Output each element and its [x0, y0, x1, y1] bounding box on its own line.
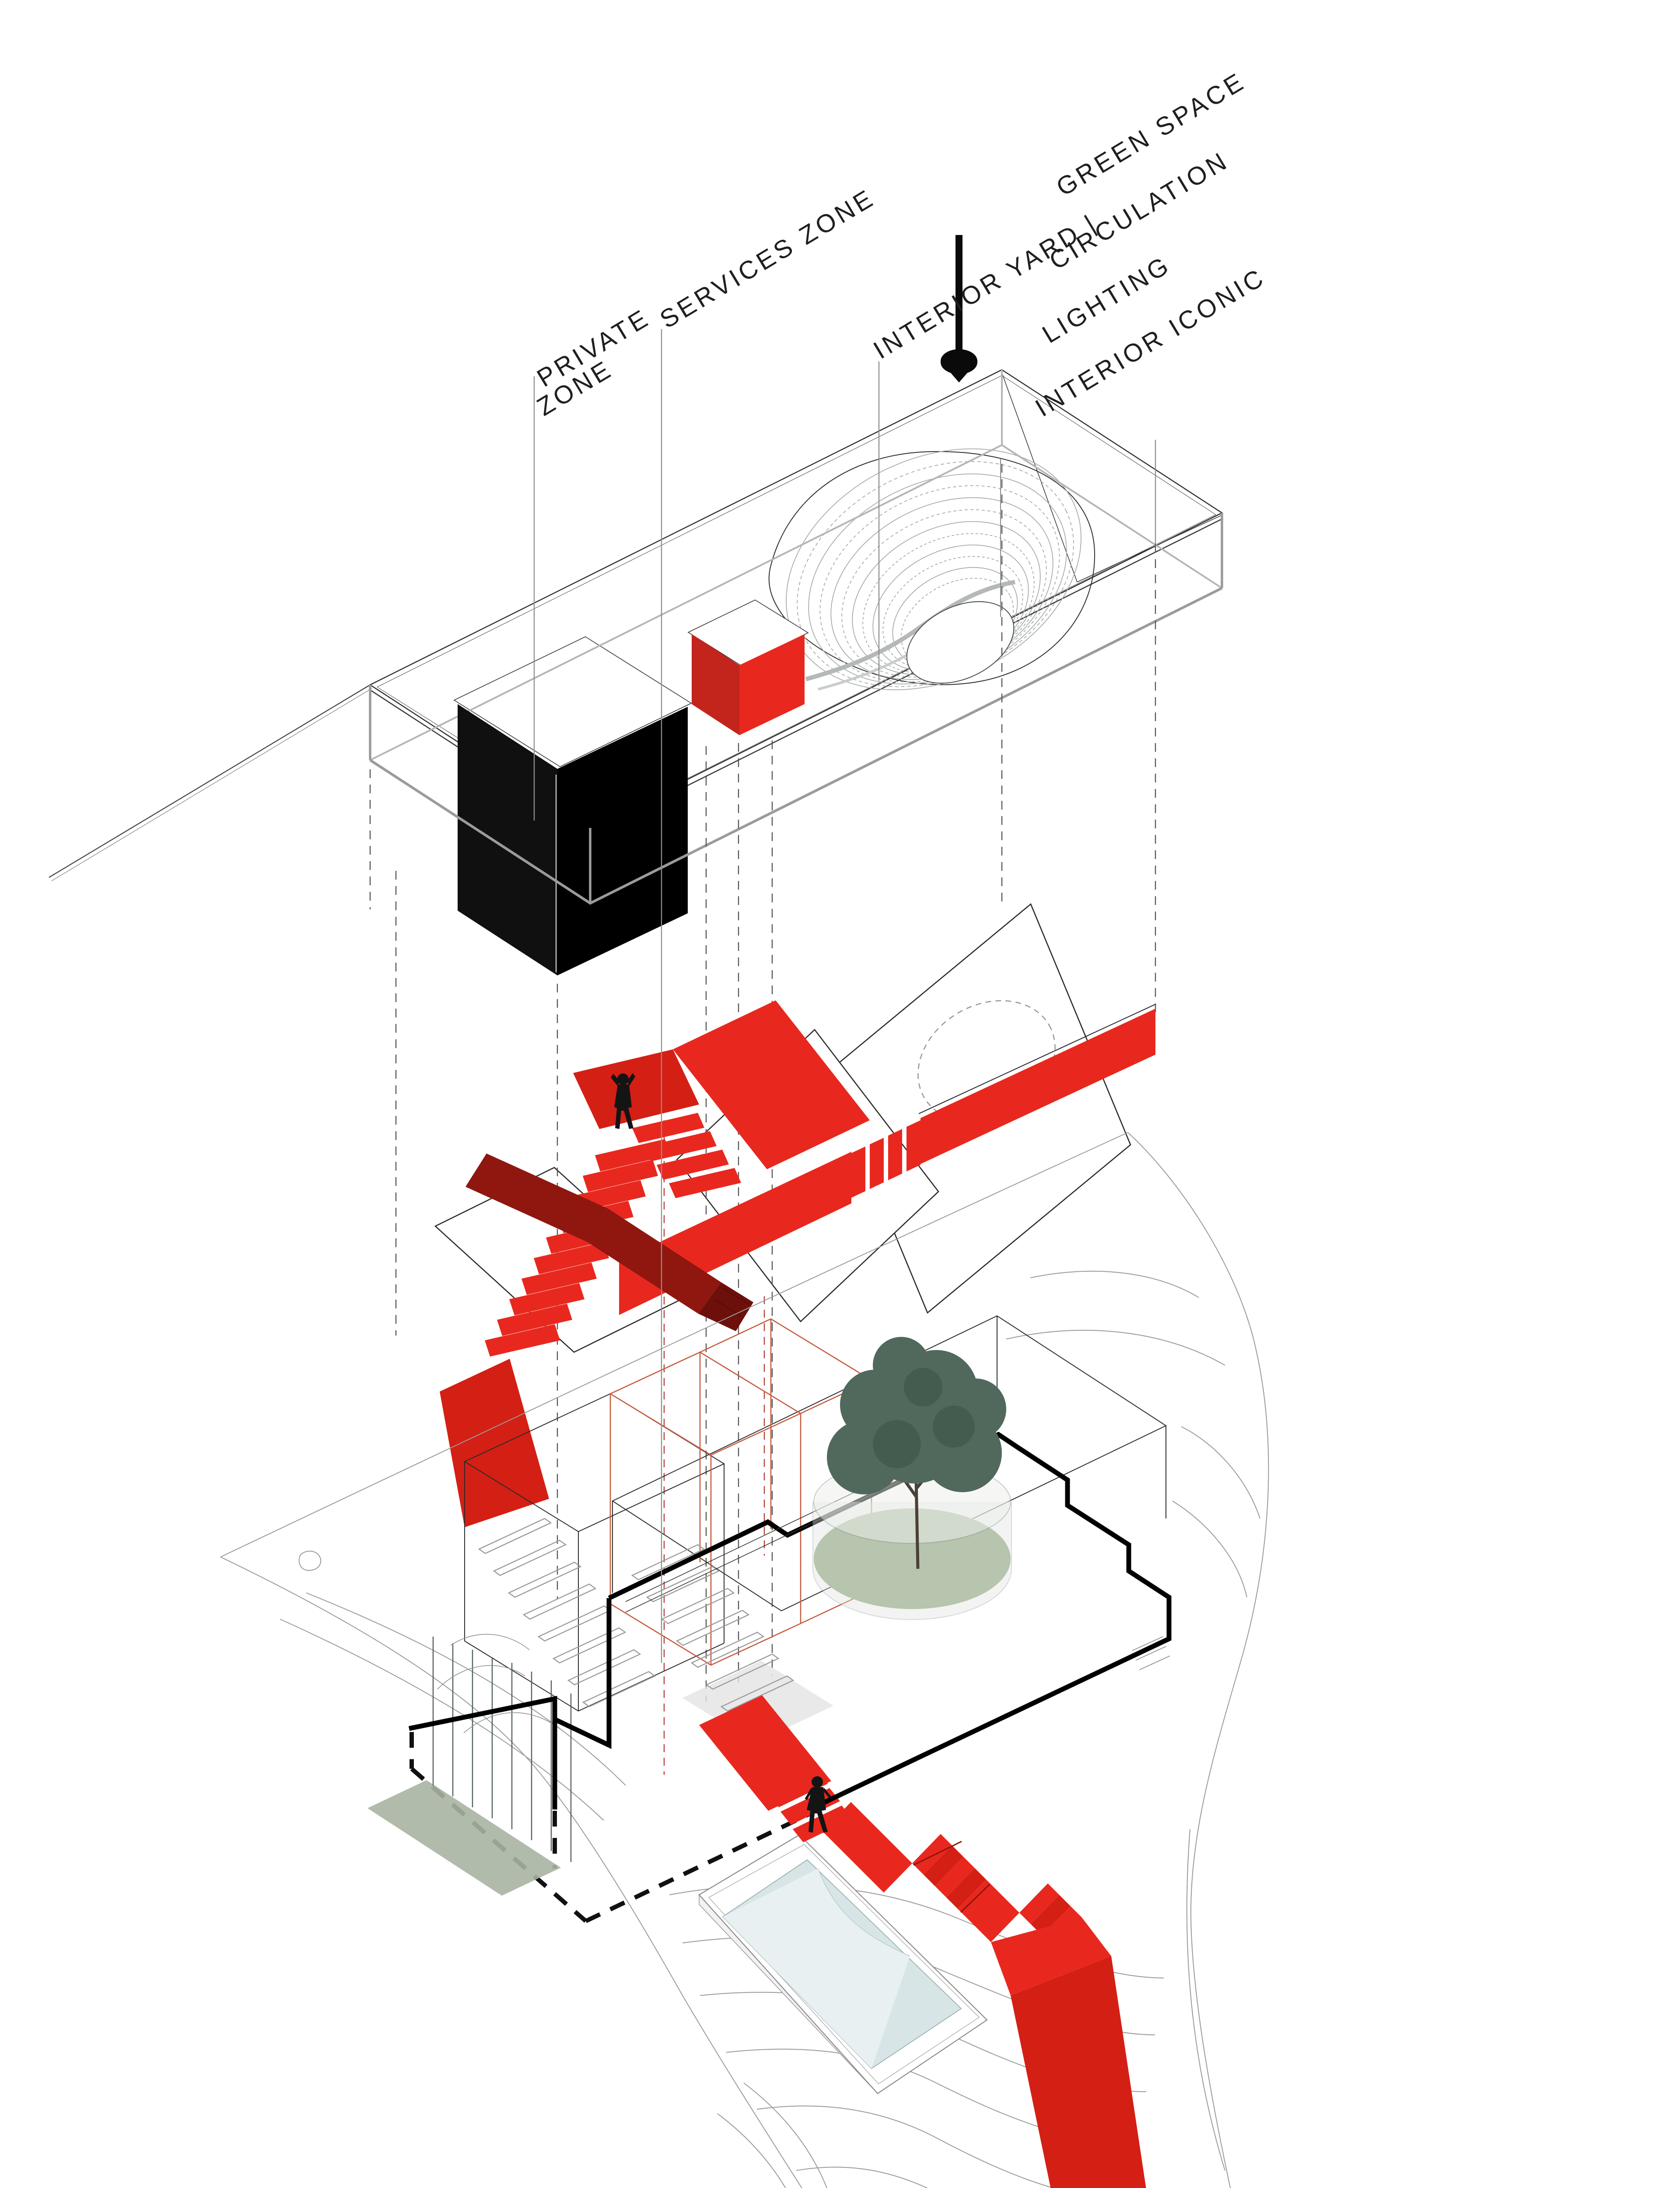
- contour-line: [1172, 1501, 1247, 1597]
- stair-tread: [870, 1138, 884, 1189]
- contour-line: [1030, 1271, 1199, 1297]
- ground-stair-run-left: [479, 1518, 655, 1707]
- stair-tread: [906, 1120, 920, 1171]
- red-path-lower-band: [1011, 1956, 1164, 2188]
- pond-blob: [299, 1551, 321, 1571]
- contour-line: [1187, 1829, 1225, 2170]
- contour-line: [744, 2083, 831, 2188]
- tree-foliage: [827, 1337, 1006, 1494]
- red-band-lower: [440, 1359, 549, 1527]
- contour-line: [306, 1593, 626, 1785]
- label-services-zone: SERVICES ZONE: [655, 183, 880, 334]
- stair-tread: [851, 1147, 865, 1198]
- tree: [813, 1337, 1011, 1620]
- label-green-space: GREEN SPACE: [1051, 67, 1250, 202]
- diagram-drawing: PRIVATE ZONE SERVICES ZONE INTERIOR YARD…: [0, 0, 1680, 2188]
- arrow-tip: [941, 362, 976, 382]
- label-interior-yard: INTERIOR YARD |: [868, 208, 1102, 365]
- site-boundary-line: [49, 685, 372, 881]
- site-line: [49, 685, 370, 877]
- contour-line: [1181, 1427, 1260, 1518]
- stair-tread: [888, 1129, 902, 1180]
- plan-outline-left-drop: [556, 1598, 609, 1745]
- contour-line: [1006, 1330, 1225, 1365]
- site-line-double: [52, 688, 372, 881]
- exploded-axonometric-diagram: PRIVATE ZONE SERVICES ZONE INTERIOR YARD…: [0, 0, 1680, 2188]
- zone-labels: PRIVATE ZONE SERVICES ZONE INTERIOR YARD…: [532, 67, 1270, 422]
